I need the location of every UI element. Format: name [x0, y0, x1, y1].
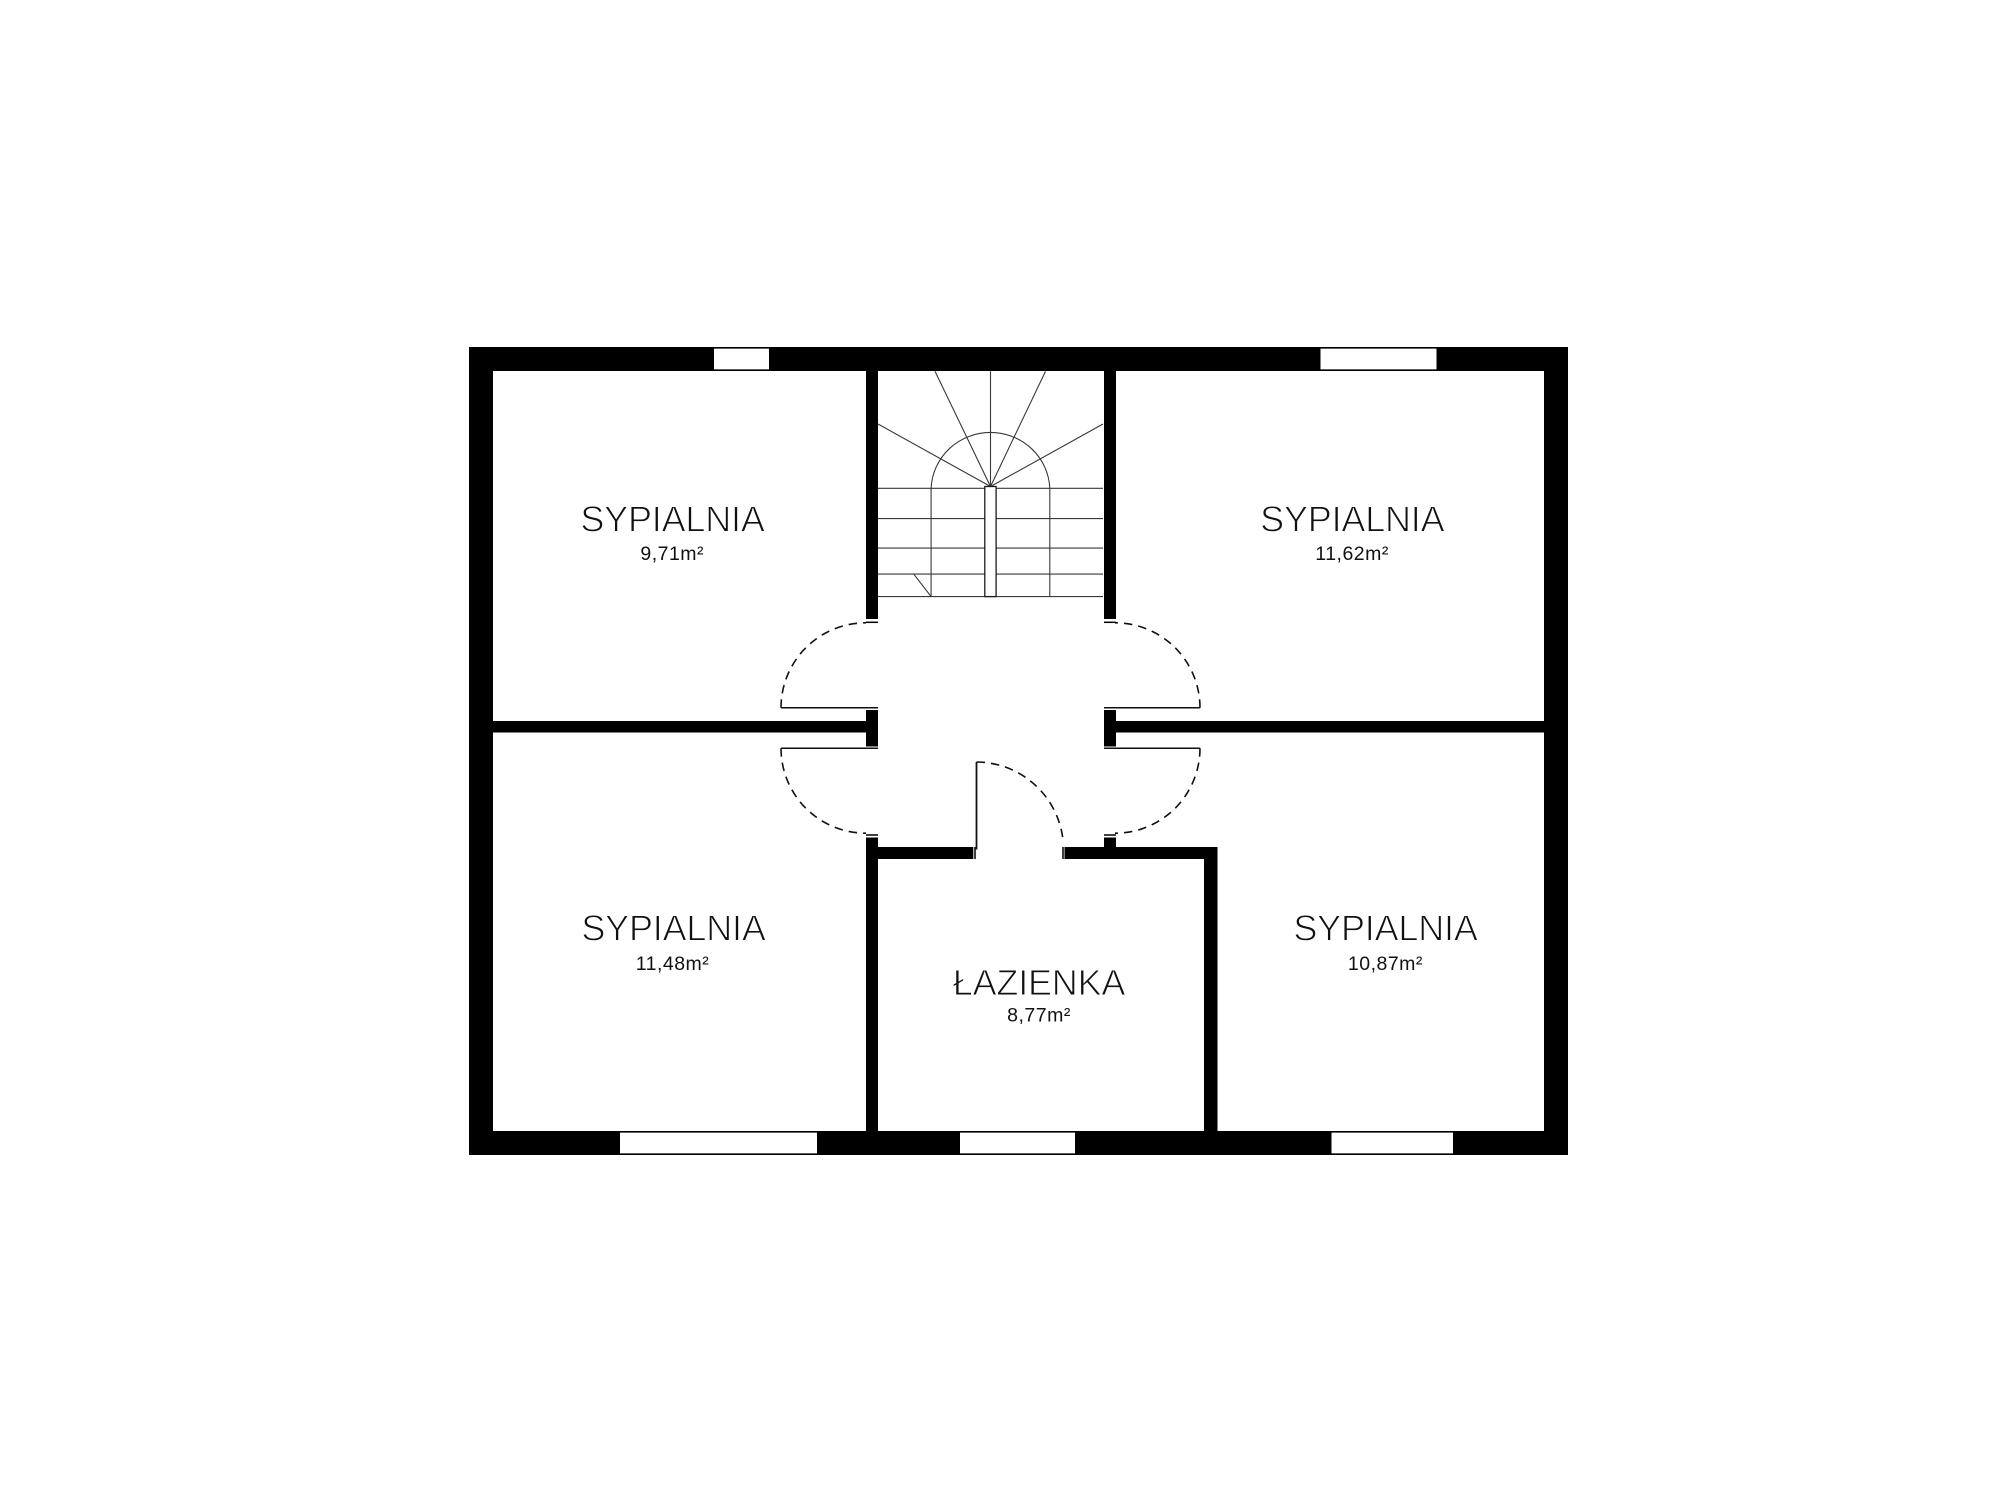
svg-text:SYPIALNIA: SYPIALNIA	[1260, 499, 1444, 540]
svg-text:ŁAZIENKA: ŁAZIENKA	[953, 962, 1126, 1003]
svg-text:9,71m²: 9,71m²	[640, 543, 704, 565]
svg-text:11,48m²: 11,48m²	[636, 953, 710, 975]
svg-text:8,77m²: 8,77m²	[1007, 1005, 1071, 1027]
svg-text:10,87m²: 10,87m²	[1348, 953, 1423, 975]
svg-text:SYPIALNIA: SYPIALNIA	[580, 499, 764, 540]
svg-text:11,62m²: 11,62m²	[1315, 543, 1389, 565]
svg-text:SYPIALNIA: SYPIALNIA	[1293, 908, 1477, 949]
svg-text:SYPIALNIA: SYPIALNIA	[581, 908, 765, 949]
